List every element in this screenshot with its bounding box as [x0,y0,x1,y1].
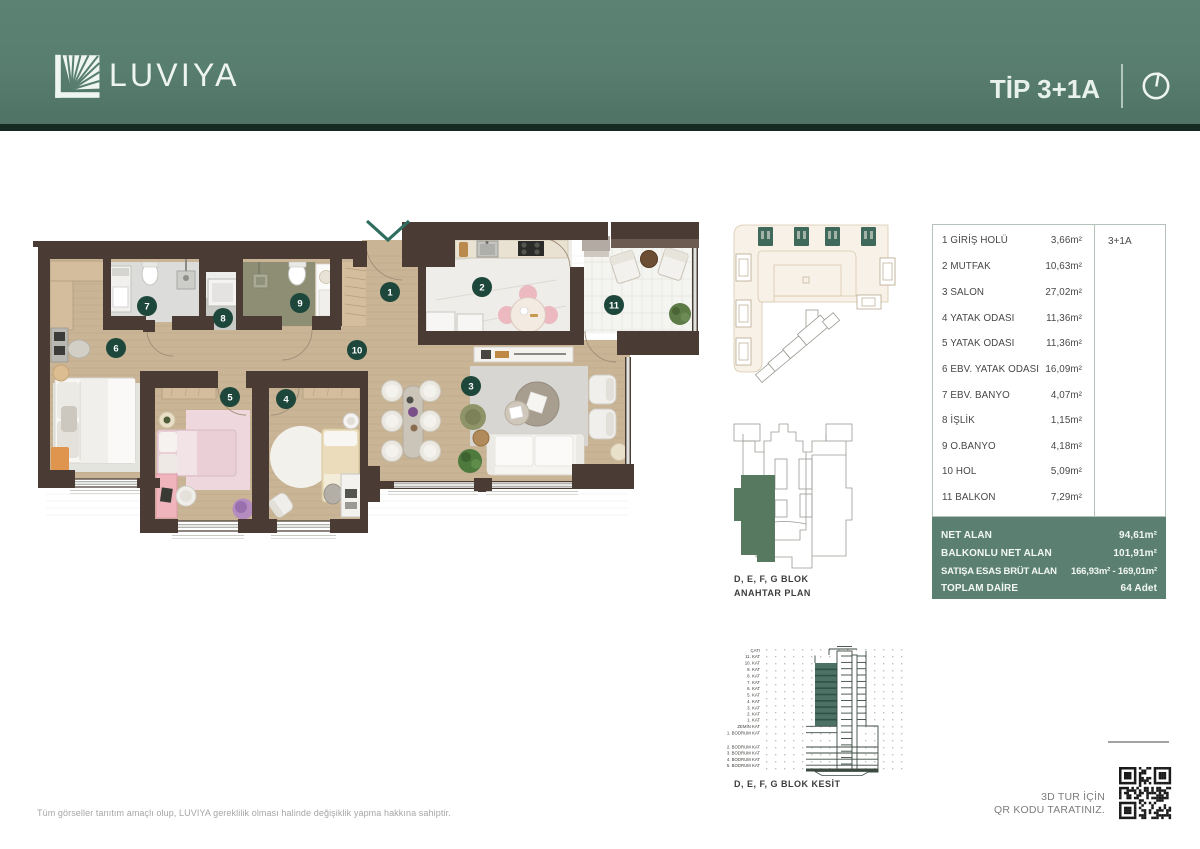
svg-text:9. KAT: 9. KAT [747,667,760,672]
svg-text:5. BODRUM KAT: 5. BODRUM KAT [727,763,760,768]
svg-text:11: 11 [609,300,620,311]
svg-text:8: 8 [220,313,225,324]
svg-text:5: 5 [227,392,233,403]
svg-text:5. KAT: 5. KAT [747,693,760,698]
svg-text:7: 7 [144,301,149,312]
svg-text:4. KAT: 4. KAT [747,699,760,704]
svg-text:1. KAT: 1. KAT [747,718,760,723]
svg-text:7. KAT: 7. KAT [747,680,760,685]
svg-text:3. BODRUM KAT: 3. BODRUM KAT [727,751,760,756]
svg-text:11. KAT: 11. KAT [745,654,760,659]
svg-text:1. BODRUM KAT: 1. BODRUM KAT [727,730,760,735]
svg-text:3: 3 [468,381,473,392]
svg-text:10: 10 [352,345,363,356]
svg-text:8. KAT: 8. KAT [747,673,760,678]
svg-text:9: 9 [297,298,302,309]
svg-text:ZEMİN KAT: ZEMİN KAT [737,724,760,729]
svg-text:2. BODRUM KAT: 2. BODRUM KAT [727,745,760,750]
svg-text:4: 4 [283,394,289,405]
svg-text:1: 1 [387,287,393,298]
svg-text:3. KAT: 3. KAT [747,705,760,710]
svg-text:2. KAT: 2. KAT [747,711,760,716]
svg-text:ÇATI: ÇATI [751,648,760,653]
svg-text:6. KAT: 6. KAT [747,686,760,691]
svg-text:4. BODRUM KAT: 4. BODRUM KAT [727,757,760,762]
svg-text:6: 6 [113,343,118,354]
svg-text:10. KAT: 10. KAT [745,661,761,666]
svg-text:2: 2 [479,282,484,293]
